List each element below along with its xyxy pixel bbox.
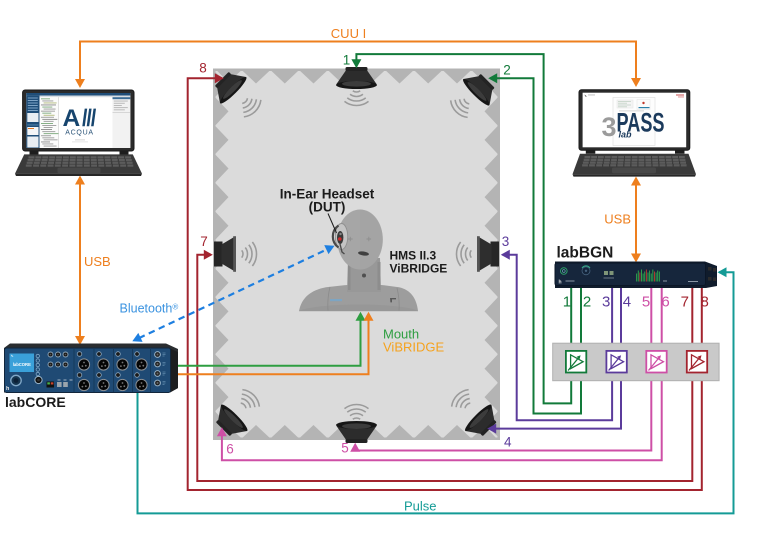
svg-text:8: 8 bbox=[701, 294, 709, 311]
svg-text:HMS II.3: HMS II.3 bbox=[390, 249, 437, 263]
svg-text:6: 6 bbox=[661, 294, 669, 311]
svg-text:7: 7 bbox=[681, 294, 689, 311]
svg-text:ViBRIDGE: ViBRIDGE bbox=[383, 340, 444, 355]
svg-text:1: 1 bbox=[563, 294, 571, 311]
svg-text:USB: USB bbox=[84, 254, 111, 269]
svg-text:labBGN: labBGN bbox=[557, 245, 614, 262]
svg-text:ViBRIDGE: ViBRIDGE bbox=[390, 262, 448, 276]
svg-text:8: 8 bbox=[199, 61, 207, 76]
svg-text:6: 6 bbox=[226, 442, 234, 457]
svg-text:A: A bbox=[63, 105, 81, 132]
svg-text:labCORE: labCORE bbox=[13, 362, 31, 367]
svg-text:lab: lab bbox=[619, 130, 633, 140]
svg-text:7: 7 bbox=[200, 234, 208, 249]
svg-text:labCORE: labCORE bbox=[5, 394, 66, 410]
svg-text:(DUT): (DUT) bbox=[309, 200, 346, 215]
svg-text:Bluetooth®: Bluetooth® bbox=[120, 302, 179, 316]
svg-text:3: 3 bbox=[502, 234, 510, 249]
svg-text:2: 2 bbox=[583, 294, 591, 311]
svg-text:5: 5 bbox=[642, 294, 650, 311]
svg-text:CUU I: CUU I bbox=[331, 26, 366, 41]
svg-text:4: 4 bbox=[504, 435, 512, 450]
svg-text:3: 3 bbox=[602, 112, 617, 142]
svg-text:1: 1 bbox=[343, 53, 351, 68]
svg-text:ACQUA: ACQUA bbox=[65, 130, 93, 137]
svg-text:5: 5 bbox=[341, 441, 349, 456]
svg-text:h: h bbox=[559, 280, 562, 286]
svg-text:USB: USB bbox=[604, 212, 631, 227]
svg-text:Pulse: Pulse bbox=[404, 499, 437, 514]
svg-text:3: 3 bbox=[602, 294, 610, 311]
svg-text:2: 2 bbox=[503, 63, 511, 78]
svg-text:4: 4 bbox=[623, 294, 631, 311]
